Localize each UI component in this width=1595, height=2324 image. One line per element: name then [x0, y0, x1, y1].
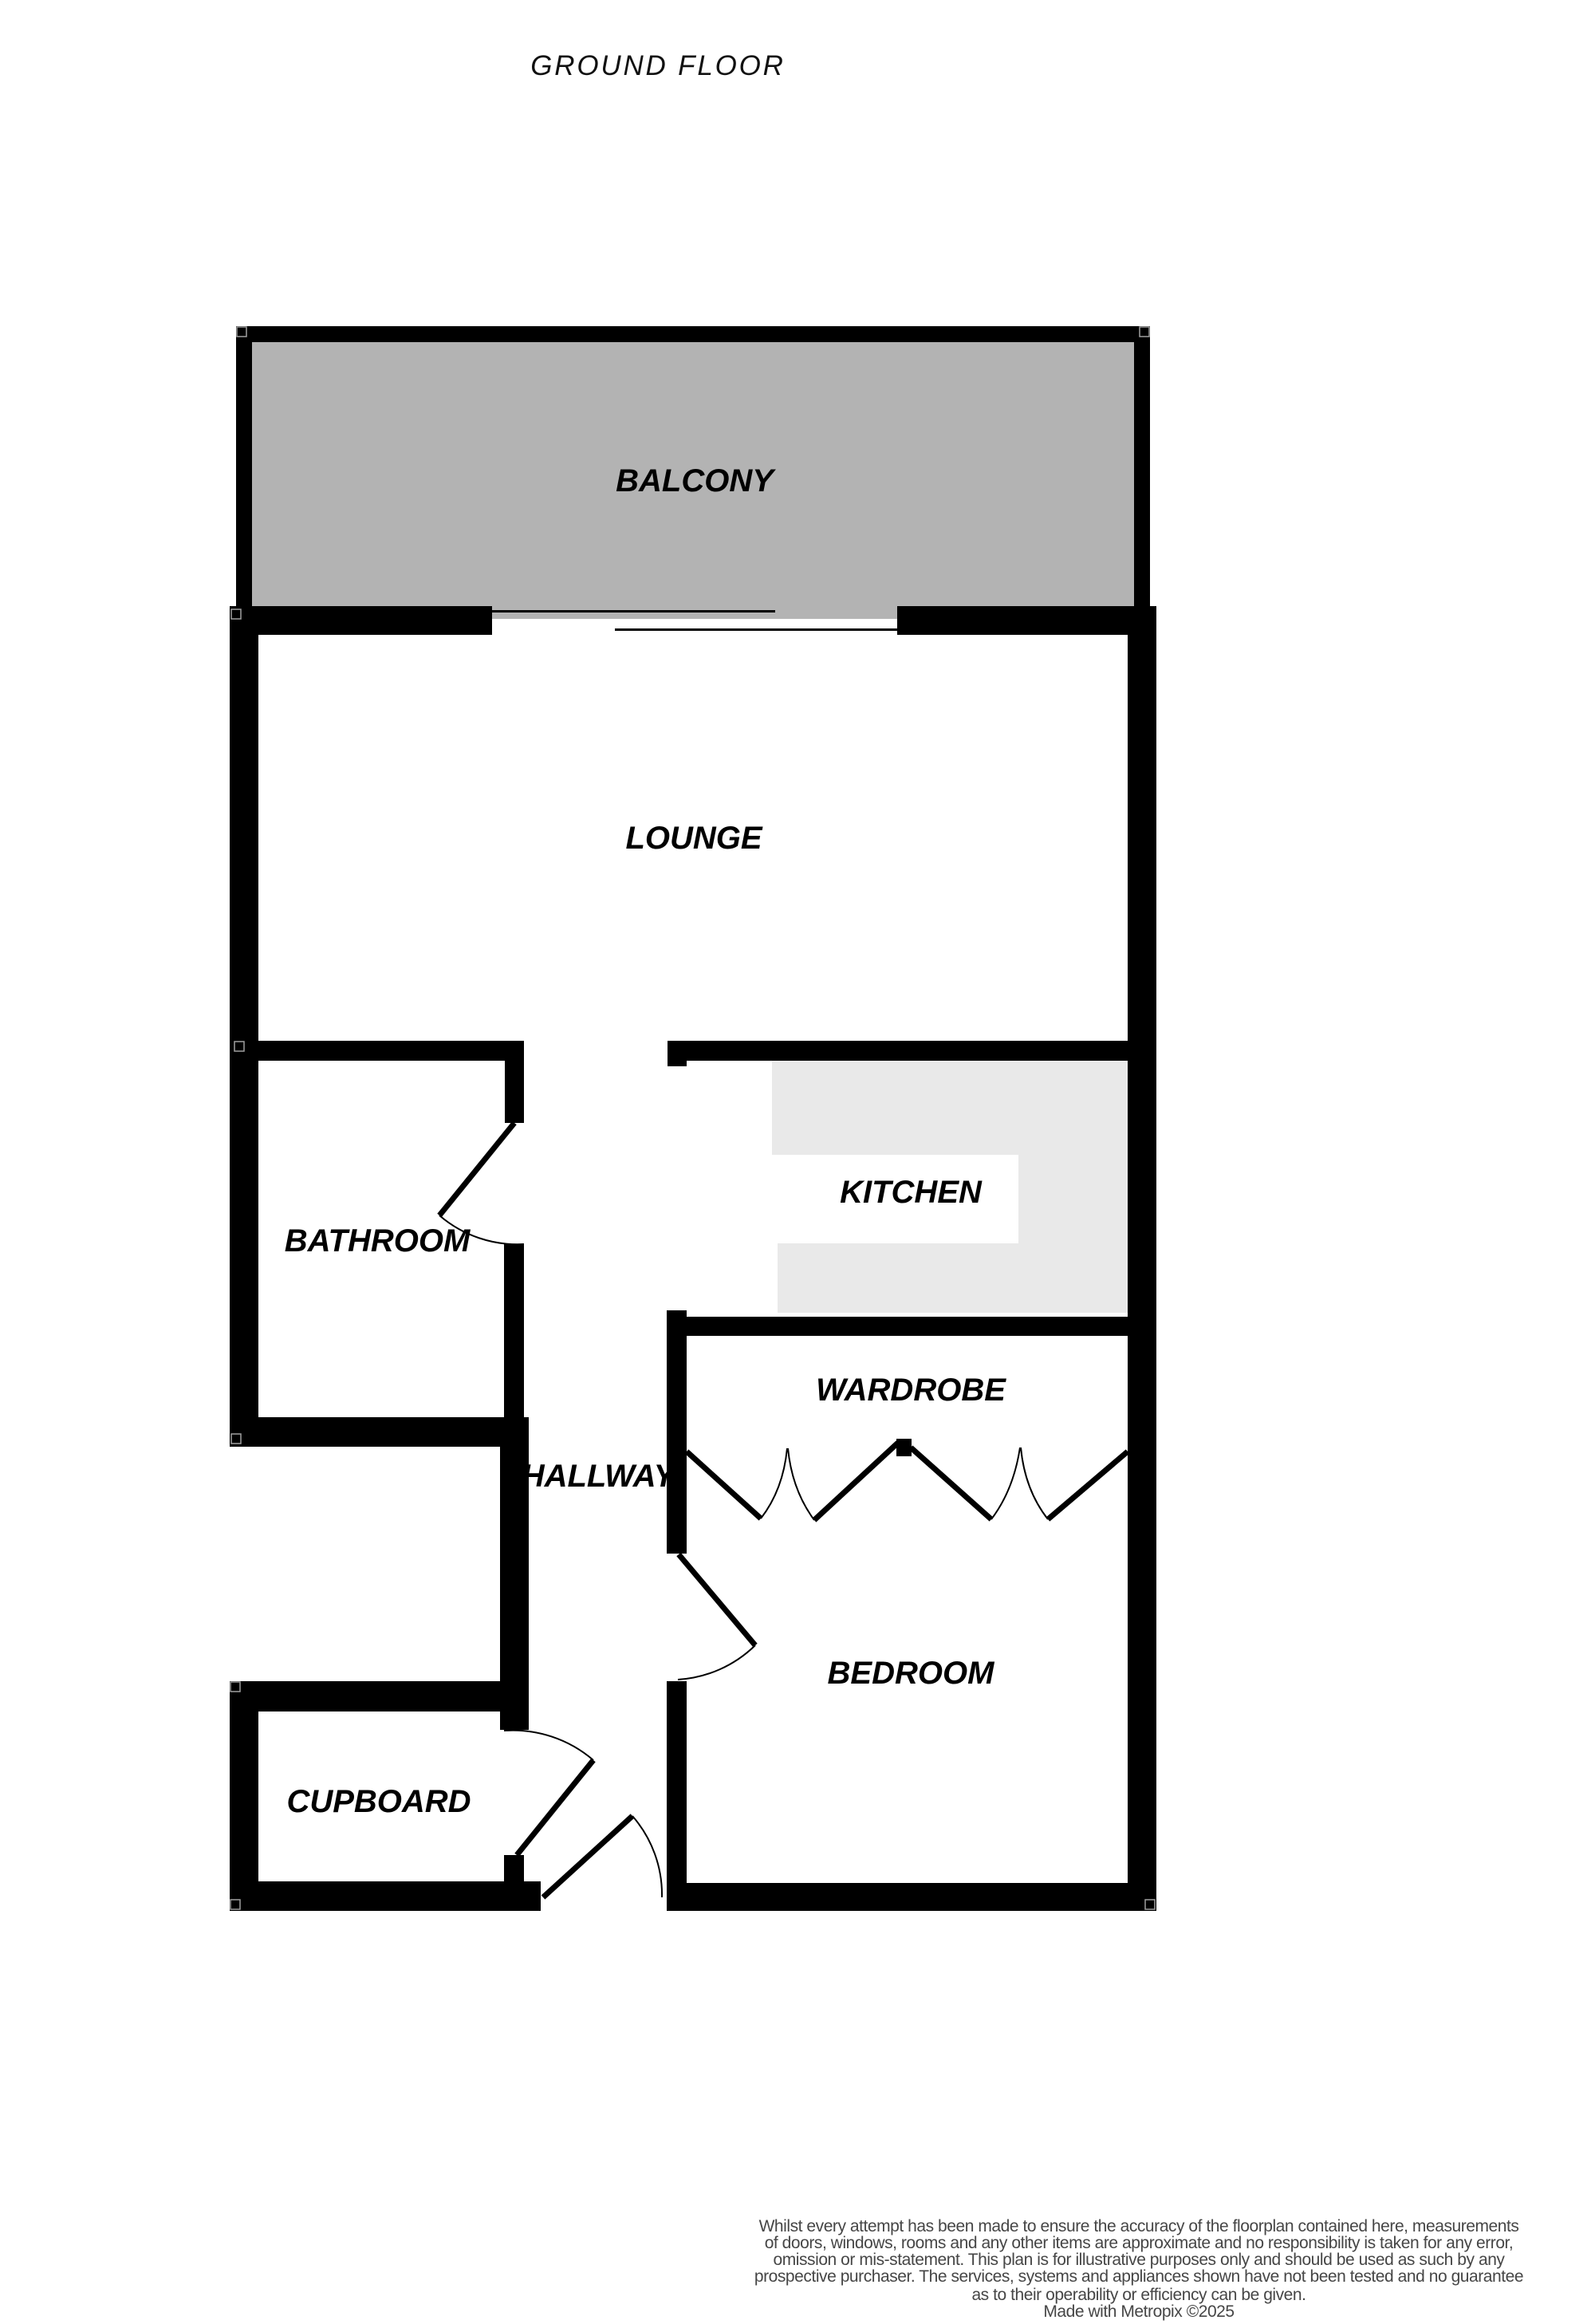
svg-text:Made with Metropix ©2025: Made with Metropix ©2025 [1043, 2302, 1234, 2321]
svg-text:KITCHEN: KITCHEN [840, 1175, 983, 1210]
svg-text:BALCONY: BALCONY [616, 463, 776, 498]
svg-text:omission or mis-statement. Thi: omission or mis-statement. This plan is … [774, 2251, 1506, 2269]
svg-text:WARDROBE: WARDROBE [816, 1373, 1006, 1408]
svg-text:BEDROOM: BEDROOM [828, 1656, 996, 1691]
svg-text:GROUND FLOOR: GROUND FLOOR [530, 50, 785, 81]
svg-text:CUPBOARD: CUPBOARD [286, 1784, 471, 1819]
svg-text:BATHROOM: BATHROOM [285, 1223, 471, 1259]
svg-text:LOUNGE: LOUNGE [625, 821, 762, 856]
svg-text:Whilst every attempt has been: Whilst every attempt has been made to en… [759, 2217, 1519, 2235]
svg-text:as to their operability or eff: as to their operability or efficiency ca… [971, 2286, 1306, 2304]
svg-text:HALLWAY: HALLWAY [522, 1459, 678, 1494]
svg-text:of doors, windows, rooms and a: of doors, windows, rooms and any other i… [765, 2234, 1514, 2252]
svg-text:prospective purchaser. The ser: prospective purchaser. The services, sys… [754, 2267, 1523, 2286]
